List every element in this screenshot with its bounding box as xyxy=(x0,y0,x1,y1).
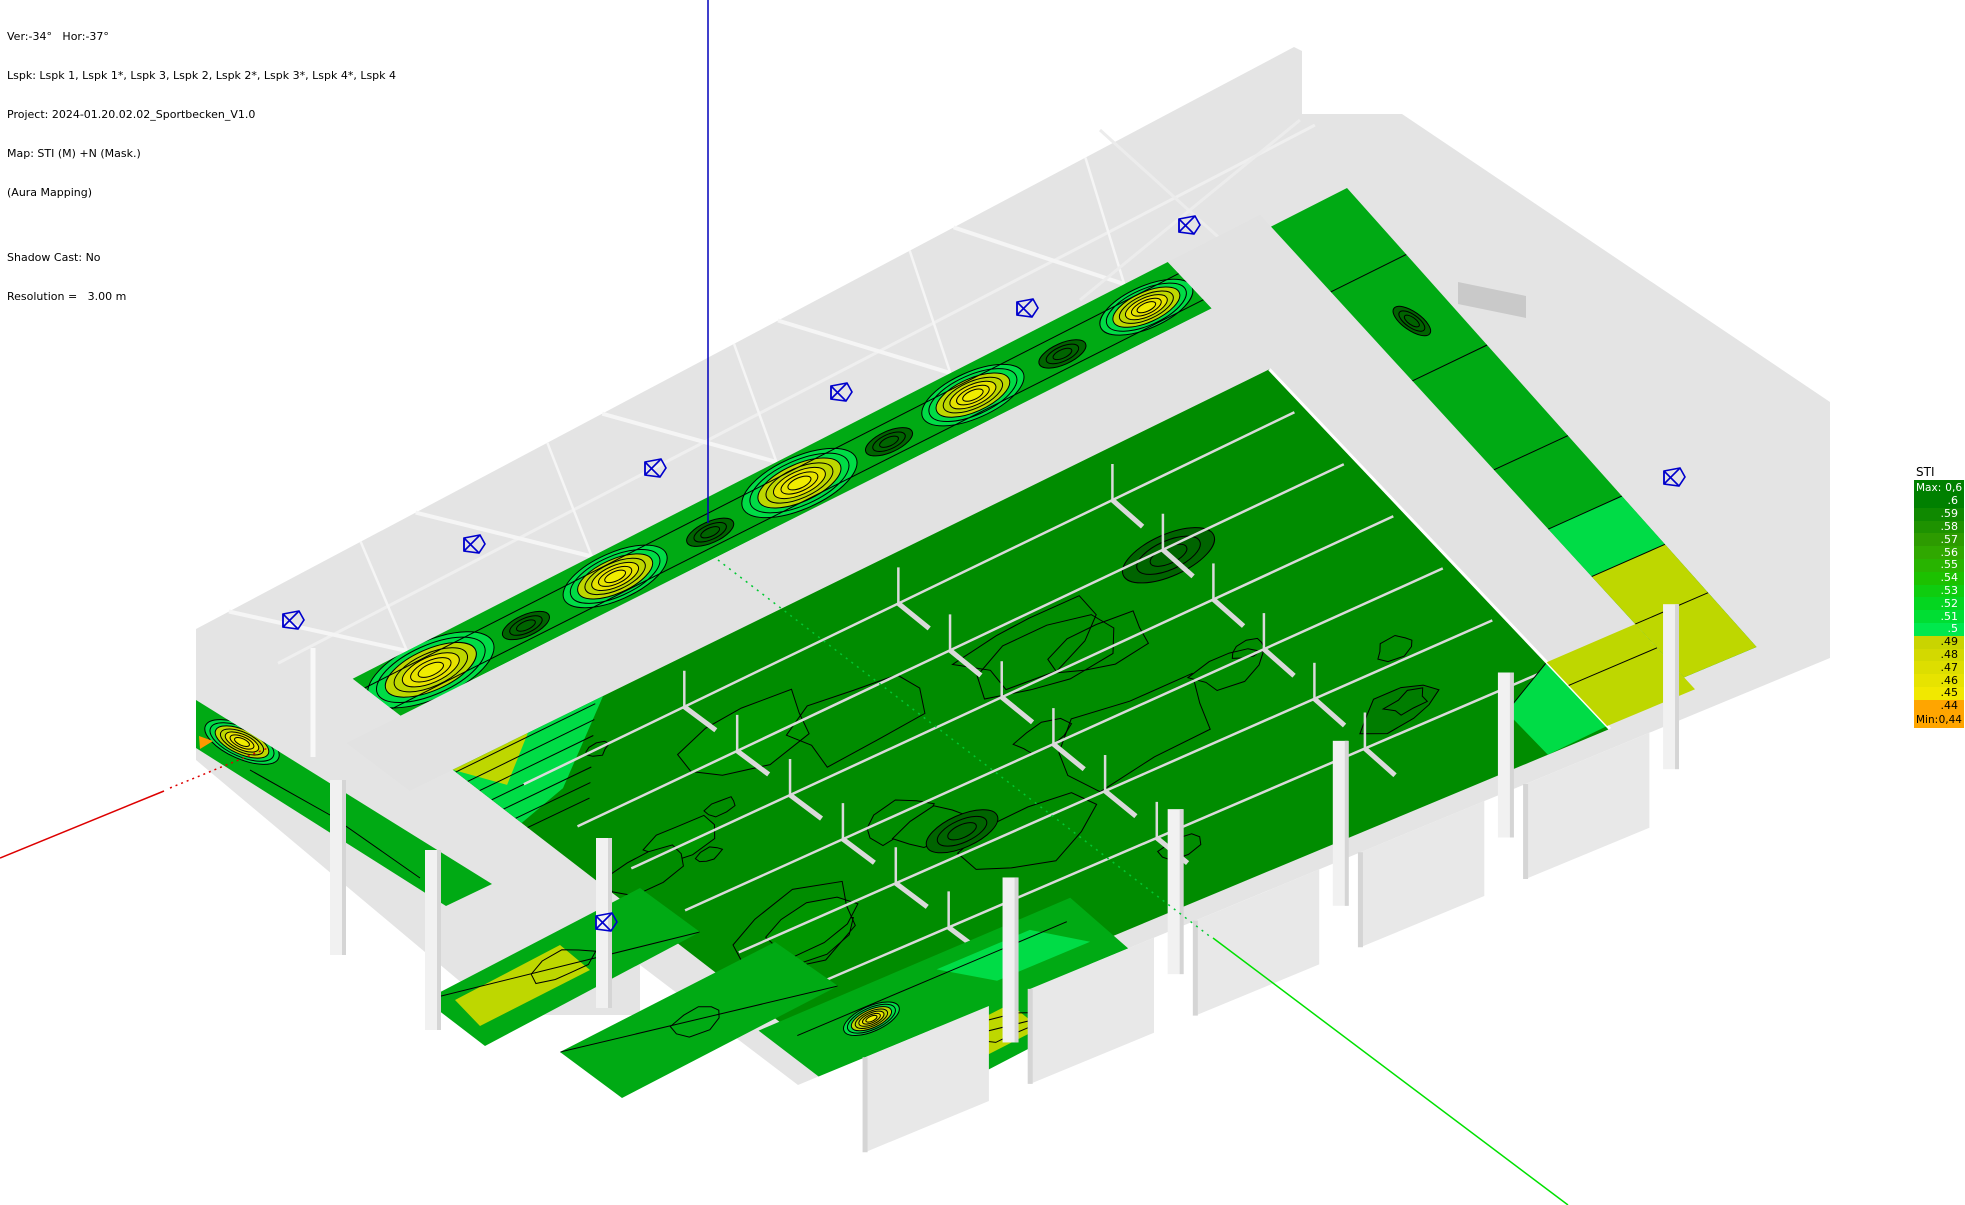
resolution: Resolution = 3.00 m xyxy=(7,290,396,303)
legend-row-55: .55 xyxy=(1914,559,1964,572)
legend-row-44: .44 xyxy=(1914,700,1964,713)
legend-max-row: Max: 0,6 xyxy=(1914,480,1964,495)
legend-row-48: .48 xyxy=(1914,649,1964,662)
shadow-cast: Shadow Cast: No xyxy=(7,251,396,264)
legend-row-51: .51 xyxy=(1914,610,1964,623)
legend-row-5: .5 xyxy=(1914,623,1964,636)
y-axis-line xyxy=(1213,938,1568,1205)
legend-row-54: .54 xyxy=(1914,572,1964,585)
legend-min-value: 0,44 xyxy=(1939,714,1962,726)
legend-max-value: 0,6 xyxy=(1945,482,1962,494)
legend-max-key: Max: xyxy=(1916,482,1941,494)
legend-row-59: .59 xyxy=(1914,508,1964,521)
x-axis-line xyxy=(0,791,164,858)
legend-row-58: .58 xyxy=(1914,521,1964,534)
aura-mapping-3d-view[interactable]: Ver:-34° Hor:-37° Lspk: Lspk 1, Lspk 1*,… xyxy=(0,0,1965,1205)
project-name: Project: 2024-01.20.02.02_Sportbecken_V1… xyxy=(7,108,396,121)
legend-row-47: .47 xyxy=(1914,661,1964,674)
legend-row-52: .52 xyxy=(1914,597,1964,610)
legend-min-row: Min: 0,44 xyxy=(1914,713,1964,728)
loudspeaker-list: Lspk: Lspk 1, Lspk 1*, Lspk 3, Lspk 2, L… xyxy=(7,69,396,82)
legend-row-46: .46 xyxy=(1914,674,1964,687)
legend-row-57: .57 xyxy=(1914,533,1964,546)
legend-row-49: .49 xyxy=(1914,636,1964,649)
map-type: Map: STI (M) +N (Mask.) xyxy=(7,147,396,160)
legend-row-56: .56 xyxy=(1914,546,1964,559)
legend-scale: Max: 0,6 .6.59.58.57.56.55.54.53.52.51.5… xyxy=(1914,480,1964,728)
sti-legend: STI Max: 0,6 .6.59.58.57.56.55.54.53.52.… xyxy=(1914,466,1964,728)
render-info-block: Ver:-34° Hor:-37° Lspk: Lspk 1, Lspk 1*,… xyxy=(7,4,396,329)
mapping-mode: (Aura Mapping) xyxy=(7,186,396,199)
legend-title: STI xyxy=(1916,466,1964,478)
view-angles: Ver:-34° Hor:-37° xyxy=(7,30,396,43)
legend-min-key: Min: xyxy=(1916,714,1938,726)
legend-row-6: .6 xyxy=(1914,495,1964,508)
legend-row-45: .45 xyxy=(1914,687,1964,700)
legend-row-53: .53 xyxy=(1914,585,1964,598)
